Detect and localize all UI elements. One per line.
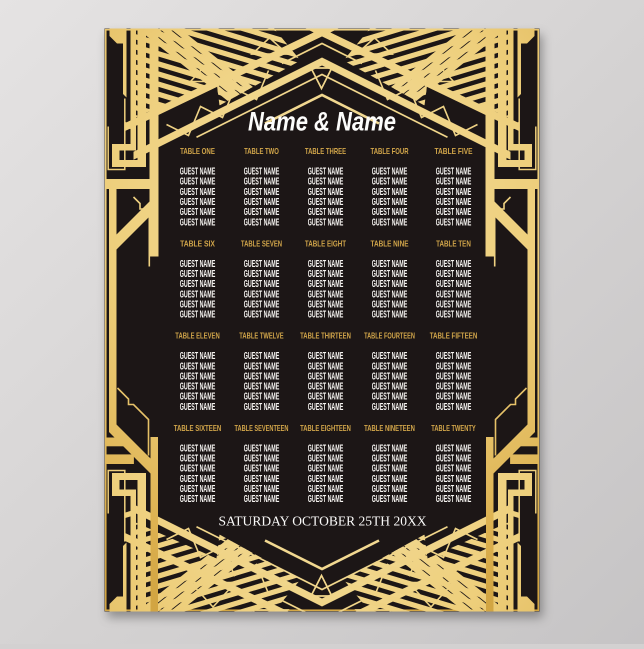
svg-text:GUEST NAME: GUEST NAME bbox=[436, 309, 472, 321]
svg-text:TABLE FIVE: TABLE FIVE bbox=[435, 147, 473, 156]
svg-text:GUEST NAME: GUEST NAME bbox=[180, 493, 216, 505]
svg-text:GUEST NAME: GUEST NAME bbox=[244, 493, 280, 505]
svg-text:GUEST NAME: GUEST NAME bbox=[372, 493, 408, 505]
svg-text:TABLE NINE: TABLE NINE bbox=[371, 239, 409, 248]
svg-text:GUEST NAME: GUEST NAME bbox=[436, 216, 472, 228]
svg-text:TABLE TWENTY: TABLE TWENTY bbox=[431, 424, 476, 433]
svg-text:GUEST NAME: GUEST NAME bbox=[308, 493, 344, 505]
svg-text:TABLE NINETEEN: TABLE NINETEEN bbox=[364, 424, 415, 433]
svg-text:TABLE FOURTEEN: TABLE FOURTEEN bbox=[364, 332, 415, 341]
svg-text:GUEST NAME: GUEST NAME bbox=[372, 309, 408, 321]
svg-text:GUEST NAME: GUEST NAME bbox=[372, 216, 408, 228]
svg-text:GUEST NAME: GUEST NAME bbox=[308, 401, 344, 413]
svg-text:TABLE ONE: TABLE ONE bbox=[180, 147, 215, 156]
svg-text:TABLE EIGHT: TABLE EIGHT bbox=[305, 239, 346, 248]
svg-text:GUEST NAME: GUEST NAME bbox=[180, 216, 216, 228]
svg-text:GUEST NAME: GUEST NAME bbox=[372, 401, 408, 413]
svg-text:GUEST NAME: GUEST NAME bbox=[308, 216, 344, 228]
svg-text:GUEST NAME: GUEST NAME bbox=[180, 401, 216, 413]
svg-text:Name & Name: Name & Name bbox=[248, 107, 396, 137]
svg-text:SATURDAY OCTOBER 25TH 20XX: SATURDAY OCTOBER 25TH 20XX bbox=[219, 515, 427, 530]
svg-text:TABLE TWELVE: TABLE TWELVE bbox=[239, 332, 284, 341]
svg-text:TABLE FOUR: TABLE FOUR bbox=[371, 147, 409, 156]
svg-text:GUEST NAME: GUEST NAME bbox=[244, 216, 280, 228]
svg-text:TABLE TEN: TABLE TEN bbox=[436, 239, 471, 248]
svg-text:GUEST NAME: GUEST NAME bbox=[180, 309, 216, 321]
svg-text:TABLE THREE: TABLE THREE bbox=[305, 147, 347, 156]
svg-text:TABLE SIX: TABLE SIX bbox=[180, 239, 215, 248]
svg-text:GUEST NAME: GUEST NAME bbox=[244, 309, 280, 321]
svg-text:TABLE SIXTEEN: TABLE SIXTEEN bbox=[174, 424, 222, 433]
svg-text:TABLE ELEVEN: TABLE ELEVEN bbox=[175, 332, 219, 341]
svg-text:TABLE THIRTEEN: TABLE THIRTEEN bbox=[300, 332, 351, 341]
svg-text:GUEST NAME: GUEST NAME bbox=[308, 309, 344, 321]
svg-text:TABLE TWO: TABLE TWO bbox=[244, 147, 279, 156]
svg-text:TABLE FIFTEEN: TABLE FIFTEEN bbox=[430, 332, 478, 341]
svg-text:GUEST NAME: GUEST NAME bbox=[244, 401, 280, 413]
svg-text:TABLE SEVEN: TABLE SEVEN bbox=[241, 239, 282, 248]
svg-text:TABLE SEVENTEEN: TABLE SEVENTEEN bbox=[235, 424, 289, 433]
svg-text:GUEST NAME: GUEST NAME bbox=[436, 493, 472, 505]
svg-text:TABLE EIGHTEEN: TABLE EIGHTEEN bbox=[300, 424, 351, 433]
svg-text:GUEST NAME: GUEST NAME bbox=[436, 401, 472, 413]
